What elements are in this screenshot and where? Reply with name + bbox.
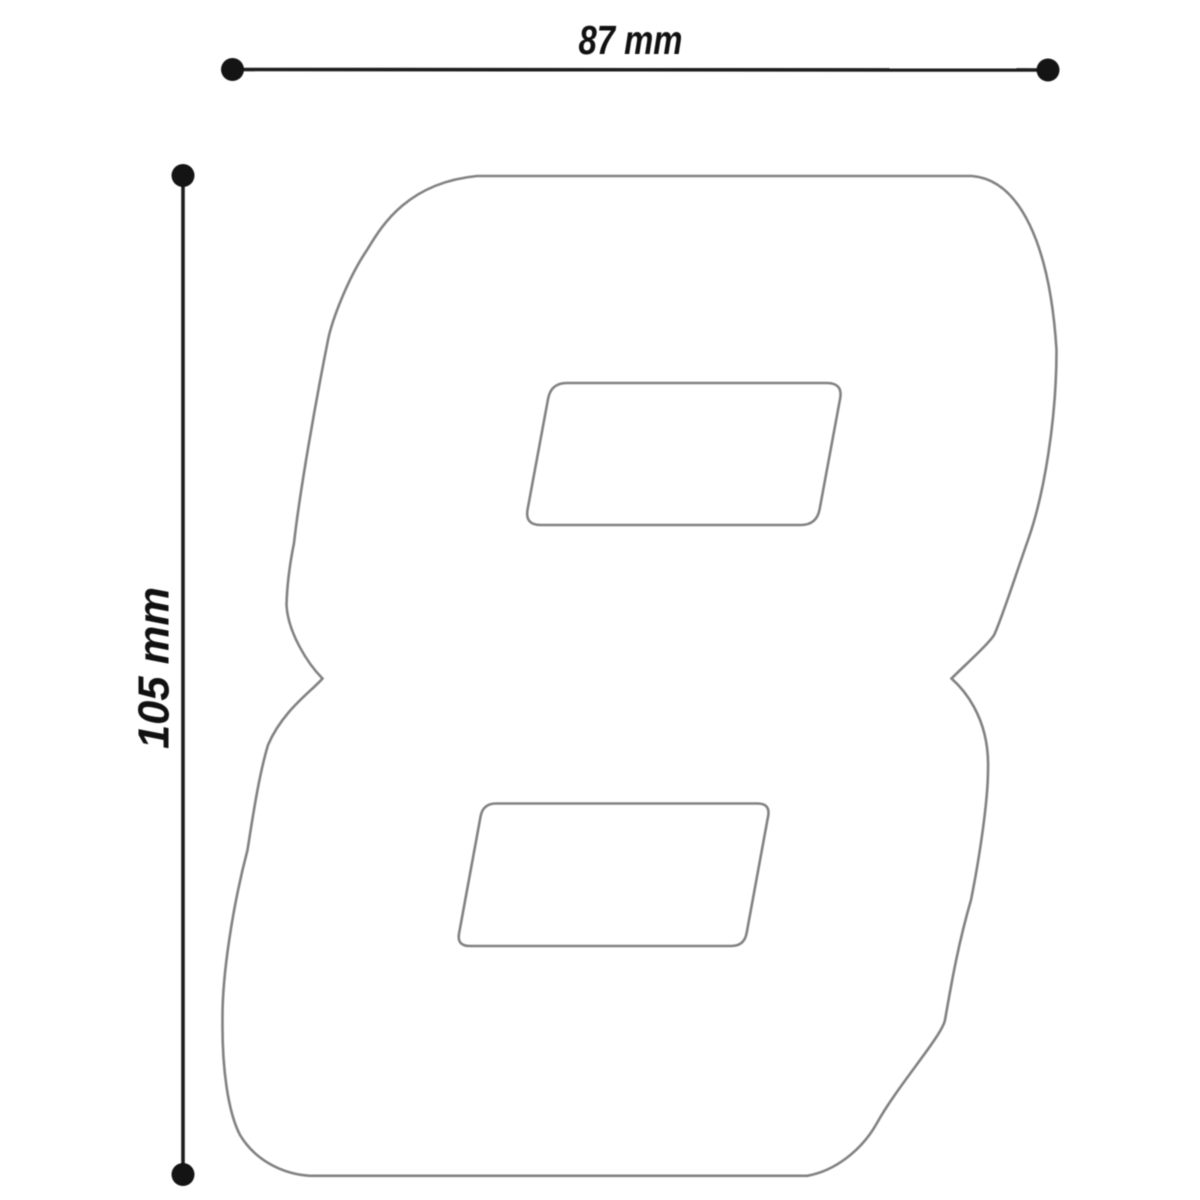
svg-text:87 mm: 87 mm [579, 16, 683, 62]
svg-text:105 mm: 105 mm [131, 587, 179, 749]
